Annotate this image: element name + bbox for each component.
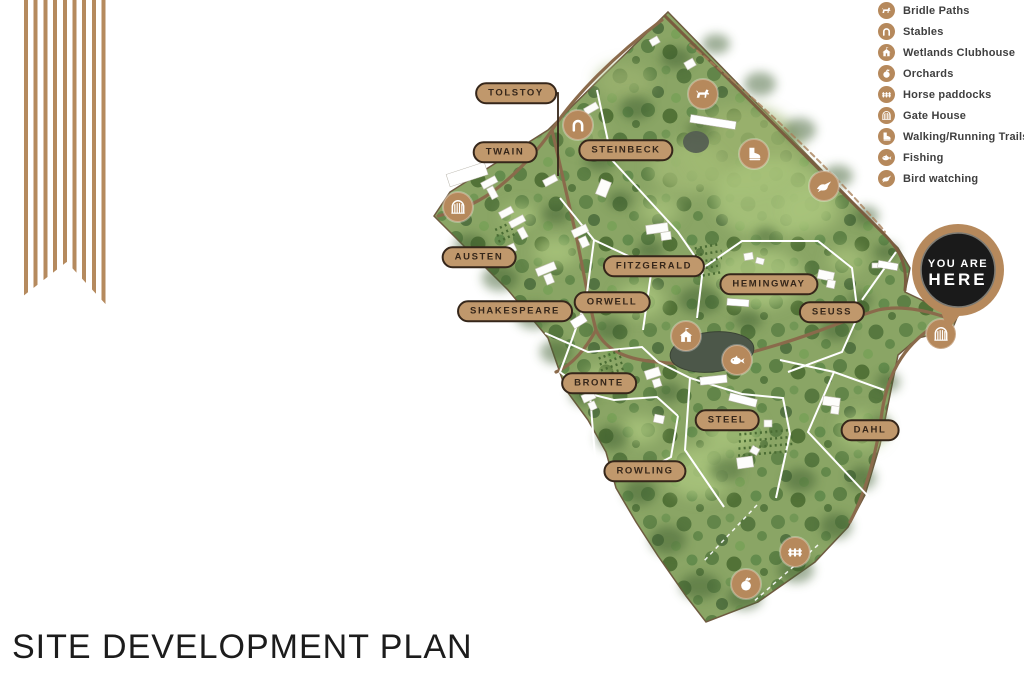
legend-item-horse-paddocks: Horse paddocks	[878, 86, 1024, 103]
legend-item-wetlands-clubhouse: Wetlands Clubhouse	[878, 44, 1024, 61]
gate-icon	[878, 107, 895, 124]
plot-label-tolstoy: TOLSTOY	[475, 82, 557, 104]
legend-item-label: Bird watching	[903, 173, 978, 185]
legend-item-bridle-paths: Bridle Paths	[878, 2, 1024, 19]
gate-house-west-map-icon	[443, 192, 473, 222]
plot-label-twain: TWAIN	[473, 141, 538, 163]
fishing-map-icon	[722, 345, 752, 375]
legend-item-label: Bridle Paths	[903, 5, 970, 17]
plot-label-seuss: SEUSS	[799, 301, 865, 323]
legend-item-label: Fishing	[903, 152, 944, 164]
plot-label-orwell: ORWELL	[574, 291, 651, 313]
legend-item-bird-watching: Bird watching	[878, 170, 1024, 187]
legend-item-label: Orchards	[903, 68, 954, 80]
bridle-paths-map-icon	[688, 79, 718, 109]
legend-item-orchards: Orchards	[878, 65, 1024, 82]
horse-paddocks-map-icon	[780, 537, 810, 567]
legend-item-label: Horse paddocks	[903, 89, 991, 101]
bird-icon	[878, 170, 895, 187]
legend-item-label: Gate House	[903, 110, 966, 122]
clubhouse-icon	[878, 44, 895, 61]
fish-icon	[878, 149, 895, 166]
page-title: SITE DEVELOPMENT PLAN	[12, 628, 473, 667]
plot-label-shakespeare: SHAKESPEARE	[457, 300, 573, 322]
wetlands-clubhouse-map-icon	[671, 321, 701, 351]
you-are-here-line1: YOU ARE	[928, 258, 988, 270]
walking-trails-map-icon	[739, 139, 769, 169]
plot-label-bronte: BRONTE	[561, 372, 637, 394]
legend-item-stables: Stables	[878, 23, 1024, 40]
plot-label-austen: AUSTEN	[442, 246, 517, 268]
plot-label-steel: STEEL	[695, 409, 760, 431]
boot-icon	[878, 128, 895, 145]
legend-item-gate-house: Gate House	[878, 107, 1024, 124]
plot-label-fitzgerald: FITZGERALD	[603, 255, 705, 277]
apple-icon	[878, 65, 895, 82]
orchards-map-icon	[731, 569, 761, 599]
you-are-here-badge: YOU ARE HERE	[910, 222, 1006, 338]
plot-label-hemingway: HEMINGWAY	[719, 273, 818, 295]
bird-watching-map-icon	[809, 171, 839, 201]
plot-label-steinbeck: STEINBECK	[578, 139, 673, 161]
plot-label-dahl: DAHL	[841, 419, 900, 441]
plot-label-rowling: ROWLING	[603, 460, 686, 482]
horse-icon	[878, 2, 895, 19]
horseshoe-icon	[878, 23, 895, 40]
legend-item-label: Stables	[903, 26, 944, 38]
you-are-here-line2: HERE	[928, 270, 987, 289]
legend-item-label: Wetlands Clubhouse	[903, 47, 1015, 59]
legend-item-label: Walking/Running Trails	[903, 131, 1024, 143]
site-development-plan-slide: TOLSTOY TWAIN STEINBECK AUSTEN FITZGERAL…	[0, 0, 1024, 682]
stables-map-icon	[563, 110, 593, 140]
legend-item-walking-running-trails: Walking/Running Trails	[878, 128, 1024, 145]
legend: Bridle Paths Stables Wetlands Clubhouse …	[878, 2, 1024, 191]
fence-icon	[878, 86, 895, 103]
legend-item-fishing: Fishing	[878, 149, 1024, 166]
